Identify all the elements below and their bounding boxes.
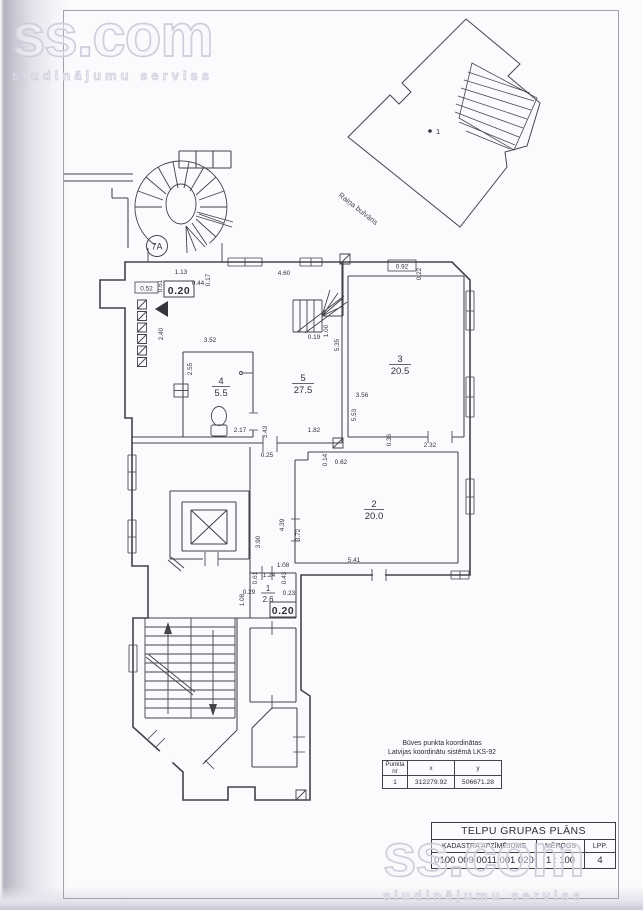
street-label: Raiņa bulvāris xyxy=(337,190,380,227)
dimension-label: 4.60 xyxy=(278,270,291,277)
coordinates-table: Būves punkta koordinātas Latvijas koordi… xyxy=(381,740,503,789)
cadastre-value: 0100 009 0011 001 020 xyxy=(432,853,537,869)
dimension-label: 1.13 xyxy=(175,269,188,276)
dimension-label: 3.90 xyxy=(255,535,262,548)
radiator-icon xyxy=(174,384,188,397)
dimension-label: 0.62 xyxy=(335,459,348,466)
dimension-label: 1.82 xyxy=(308,427,321,434)
room-labels: 1 2.6 2 20.0 3 20.5 4 5.5 5 27.5 xyxy=(212,354,411,604)
room-number: 5 xyxy=(300,373,305,384)
main-staircase xyxy=(145,618,235,718)
col-header-point: Punkta nr xyxy=(383,760,408,775)
dimension-label: 0.25 xyxy=(261,452,274,459)
table-row: 1 312279.92 506671.28 xyxy=(383,776,502,789)
dimension-label: 1.24 xyxy=(263,572,276,579)
dimension-label: 1.08 xyxy=(239,593,246,606)
room-number: 1 xyxy=(266,584,270,593)
vent-shaft-squares xyxy=(138,300,147,367)
dimension-label: 3.43 xyxy=(262,425,269,438)
dimension-label: 1.08 xyxy=(277,562,290,569)
dimension-label: 2.55 xyxy=(187,362,194,375)
stair-handrail xyxy=(146,654,195,695)
coordinates-subtitle: Latvijas koordinātu sistēmā LKS-92 xyxy=(381,749,503,758)
door-ticks xyxy=(148,413,452,769)
dimension-label: 5.35 xyxy=(334,338,341,351)
room-number: 3 xyxy=(397,354,402,365)
site-point-label: 1 xyxy=(436,127,440,136)
title-block: TELPU GRUPAS PLĀNS KADASTRA APZĪMĒJUMS M… xyxy=(431,822,616,869)
dimension-label: 3.56 xyxy=(356,392,369,399)
dimension-label: 0.20 xyxy=(272,605,294,617)
page-value: 4 xyxy=(585,853,616,869)
room-area: 20.5 xyxy=(391,366,410,377)
spiral-staircase xyxy=(135,161,233,262)
page-label: LPP. xyxy=(585,840,616,853)
coordinates-title: Būves punkta koordinātas xyxy=(381,740,503,749)
room-area: 2.6 xyxy=(263,595,274,604)
floor-plan-drawing: 1 Raiņa bulvāris xyxy=(0,0,643,910)
dimension-label: 0.36 xyxy=(386,433,393,446)
scale-value: 1 : 100 xyxy=(537,853,585,869)
dimension-label: 1.00 xyxy=(323,324,330,337)
dimension-label: 0.61 xyxy=(252,571,259,584)
dimension-label: 2.32 xyxy=(424,442,437,449)
dimension-label: 0.43 xyxy=(281,571,288,584)
scale-label: MĒROGS xyxy=(537,840,585,853)
room-number: 4 xyxy=(218,376,223,387)
plan-title: TELPU GRUPAS PLĀNS xyxy=(432,823,616,840)
cell-x-value: 312279.92 xyxy=(408,776,455,789)
cadastre-label: KADASTRA APZĪMĒJUMS xyxy=(432,840,537,853)
dimension-label: 3.52 xyxy=(204,337,217,344)
dimension-label: 0.92 xyxy=(396,264,409,271)
dimension-label: 2.17 xyxy=(234,427,247,434)
scanned-floor-plan-page: 1 Raiņa bulvāris xyxy=(0,0,643,910)
room-area: 20.0 xyxy=(365,511,384,522)
dimension-label: 0.22 xyxy=(416,267,423,280)
winder-stairs xyxy=(293,290,347,333)
stair-id-badge: 7A xyxy=(147,236,168,257)
col-header-y: y xyxy=(455,760,502,775)
cell-y-value: 506671.28 xyxy=(455,776,502,789)
dimension-label: 5.41 xyxy=(348,557,361,564)
stair-badge-label: 7A xyxy=(151,242,162,252)
toilet-icon xyxy=(211,407,227,437)
dimension-label: 0.17 xyxy=(205,273,212,286)
site-building-outline xyxy=(348,19,540,227)
site-point-marker: 1 xyxy=(428,127,440,136)
dimension-label: 0.61 xyxy=(157,279,164,292)
dimension-label: 0.14 xyxy=(322,453,329,466)
col-header-x: x xyxy=(408,760,455,775)
dimension-label: 0.20 xyxy=(168,285,190,297)
cell-point-nr: 1 xyxy=(383,776,408,789)
room-number: 2 xyxy=(371,499,376,510)
stair-down-arrow xyxy=(209,630,217,716)
section-marker-triangle xyxy=(155,301,168,317)
dimension-label: 2.40 xyxy=(158,327,165,340)
dimension-label: 5.53 xyxy=(351,408,358,421)
floor-plan-interior-walls xyxy=(64,151,464,767)
dimension-label: 0.23 xyxy=(283,590,296,597)
dimension-label: 0.52 xyxy=(140,286,153,293)
dimension-label: 3.72 xyxy=(295,528,302,541)
dimension-label: 0.19 xyxy=(308,334,321,341)
dimension-label: 4.39 xyxy=(279,518,286,531)
site-building-stairs-hatch xyxy=(455,63,537,150)
room-area: 27.5 xyxy=(294,385,313,396)
room-area: 5.5 xyxy=(214,388,227,399)
door-handle-icon xyxy=(240,372,254,375)
